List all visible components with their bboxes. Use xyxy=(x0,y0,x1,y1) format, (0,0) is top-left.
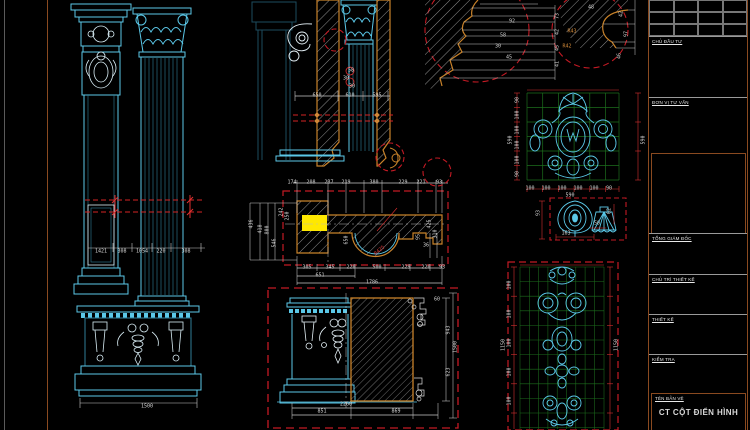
strip-dimension-chains xyxy=(511,265,613,429)
column-section-detail xyxy=(250,0,425,175)
revision-table xyxy=(649,0,747,36)
pilaster-silhouette xyxy=(252,2,296,160)
checker-section: KIỂM TRA xyxy=(649,354,747,393)
section-dimensions xyxy=(295,91,390,101)
hatched-section-half xyxy=(351,298,413,401)
scroll-ornament xyxy=(288,24,312,61)
ornament-boundary-dashed xyxy=(550,198,626,240)
cad-drawing-sheet: CHỦ ĐẦU TƯ ĐƠN VỊ TƯ VẤN TỔNG GIÁM ĐỐC C… xyxy=(0,0,750,430)
designer-label: THIẾT KẾ xyxy=(652,317,674,322)
designer-section: THIẾT KẾ xyxy=(649,314,747,354)
section-cut-left xyxy=(317,0,339,166)
section-cut-right xyxy=(377,0,390,166)
pedestal-base xyxy=(75,306,201,396)
callout-circle xyxy=(423,158,451,186)
sheet-border-line xyxy=(4,0,5,430)
layout-grid xyxy=(527,93,619,180)
plan-section-detail xyxy=(245,168,455,288)
pilaster-cartouche-ornament xyxy=(86,26,116,265)
cartouche-ornament xyxy=(505,85,650,200)
lead-designer-label: CHỦ TRÌ THIẾT KẾ xyxy=(652,277,695,282)
project-name-box xyxy=(651,153,746,234)
pedestal-ornament-detail xyxy=(302,316,346,363)
checker-label: KIỂM TRA xyxy=(652,357,675,362)
yellow-highlight xyxy=(302,215,327,231)
title-block: CHỦ ĐẦU TƯ ĐƠN VỊ TƯ VẤN TỔNG GIÁM ĐỐC C… xyxy=(648,0,748,430)
pilaster-column xyxy=(71,4,131,294)
drawing-name-label: TÊN BẢN VẼ xyxy=(655,396,684,401)
leaf-ornament xyxy=(558,201,592,237)
leaf-tassel-ornament xyxy=(530,190,640,255)
sheet-frame-line xyxy=(47,0,48,430)
fluted-column xyxy=(133,8,191,306)
column-elevations xyxy=(55,0,230,430)
strip-grid xyxy=(520,267,604,429)
pedestal-section-detail xyxy=(262,283,462,430)
consultant-section: ĐƠN VỊ TƯ VẤN xyxy=(649,97,747,152)
client-section: CHỦ ĐẦU TƯ xyxy=(649,36,747,97)
consultant-label: ĐƠN VỊ TƯ VẤN xyxy=(652,100,689,105)
strip-ornament-lines xyxy=(538,267,586,426)
lead-designer-section: CHỦ TRÌ THIẾT KẾ xyxy=(649,274,747,314)
director-section: TỔNG GIÁM ĐỐC xyxy=(649,233,747,274)
moulding-curl xyxy=(390,148,400,168)
drawing-title: CT CỘT ĐIỂN HÌNH xyxy=(652,408,745,417)
moulding-profile-callouts xyxy=(420,0,655,95)
drawing-title-box: TÊN BẢN VẼ CT CỘT ĐIỂN HÌNH xyxy=(651,393,746,430)
client-label: CHỦ ĐẦU TƯ xyxy=(652,39,682,44)
profile-hatch-left xyxy=(425,0,478,90)
pedestal-ornament xyxy=(93,322,183,365)
ornament-strip xyxy=(500,255,620,430)
director-label: TỔNG GIÁM ĐỐC xyxy=(652,236,692,241)
